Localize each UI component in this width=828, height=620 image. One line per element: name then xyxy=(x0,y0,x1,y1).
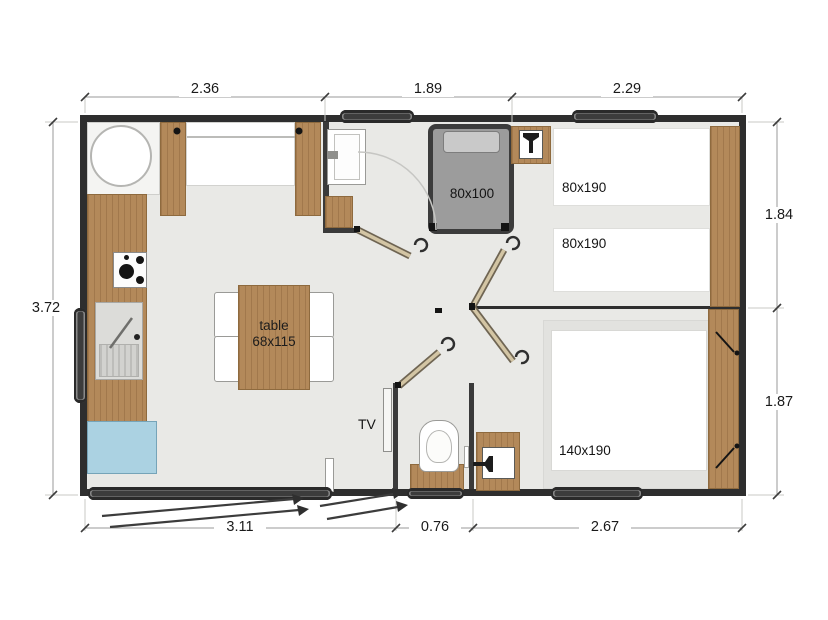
chair-icon xyxy=(307,336,334,382)
shower-foot-icon xyxy=(501,223,509,231)
dim-top-2: 1.89 xyxy=(402,81,454,97)
chair-icon xyxy=(214,292,241,338)
sofa-armrest xyxy=(160,122,186,216)
bedroom-divider-wall xyxy=(472,306,739,309)
chair-icon xyxy=(307,292,334,338)
sofa-seat xyxy=(186,122,295,186)
table-size: 68x115 xyxy=(238,334,310,350)
floor-plan: table 68x115 80x100 80x190 80x190 140x19… xyxy=(0,0,828,620)
burner-icon xyxy=(136,256,144,264)
window-icon xyxy=(572,110,658,123)
window-icon xyxy=(407,488,464,499)
burner-icon xyxy=(119,264,134,279)
round-basin-icon xyxy=(90,125,152,187)
dim-bottom-2: 0.76 xyxy=(409,519,461,535)
tv-icon xyxy=(383,388,392,452)
double-bed-size-label: 140x190 xyxy=(559,443,611,458)
dim-top-1: 2.36 xyxy=(179,81,231,97)
sliding-door-icon xyxy=(88,487,332,500)
dim-bottom-1: 3.11 xyxy=(214,519,266,535)
washbasin-tap-icon xyxy=(482,447,515,479)
twin-headboard xyxy=(710,126,740,307)
shower-tray-icon xyxy=(443,131,500,153)
dim-right-1: 1.84 xyxy=(753,207,805,223)
sofa-armrest xyxy=(295,122,321,216)
shower-size-label: 80x100 xyxy=(432,186,512,201)
wc-right-wall xyxy=(469,383,474,489)
chair-icon xyxy=(214,336,241,382)
dim-left-1: 3.72 xyxy=(20,300,72,316)
dim-bottom-3: 2.67 xyxy=(579,519,631,535)
paper-holder-icon xyxy=(464,446,469,468)
sink-drainer-icon xyxy=(99,344,139,377)
dim-right-2: 1.87 xyxy=(753,394,805,410)
window-icon xyxy=(74,308,87,403)
tap-icon xyxy=(327,151,338,159)
bathroom-wall-stub xyxy=(323,228,359,233)
window-icon xyxy=(551,487,643,500)
burner-icon xyxy=(136,276,144,284)
shower-foot-icon xyxy=(429,223,437,231)
double-headboard xyxy=(708,309,739,489)
fridge-unit xyxy=(87,421,157,474)
toilet-bowl-inner xyxy=(426,430,452,463)
window-icon xyxy=(340,110,414,123)
washbasin-tap-icon xyxy=(519,130,543,159)
dim-top-3: 2.29 xyxy=(601,81,653,97)
burner-icon xyxy=(124,255,129,260)
tv-label: TV xyxy=(358,416,376,432)
bed2-size-label: 80x190 xyxy=(562,236,606,251)
bathroom-cabinet xyxy=(325,196,353,228)
wc-left-wall xyxy=(393,383,398,489)
table-label: table 68x115 xyxy=(238,318,310,350)
table-word: table xyxy=(238,318,310,334)
bed1-size-label: 80x190 xyxy=(562,180,606,195)
